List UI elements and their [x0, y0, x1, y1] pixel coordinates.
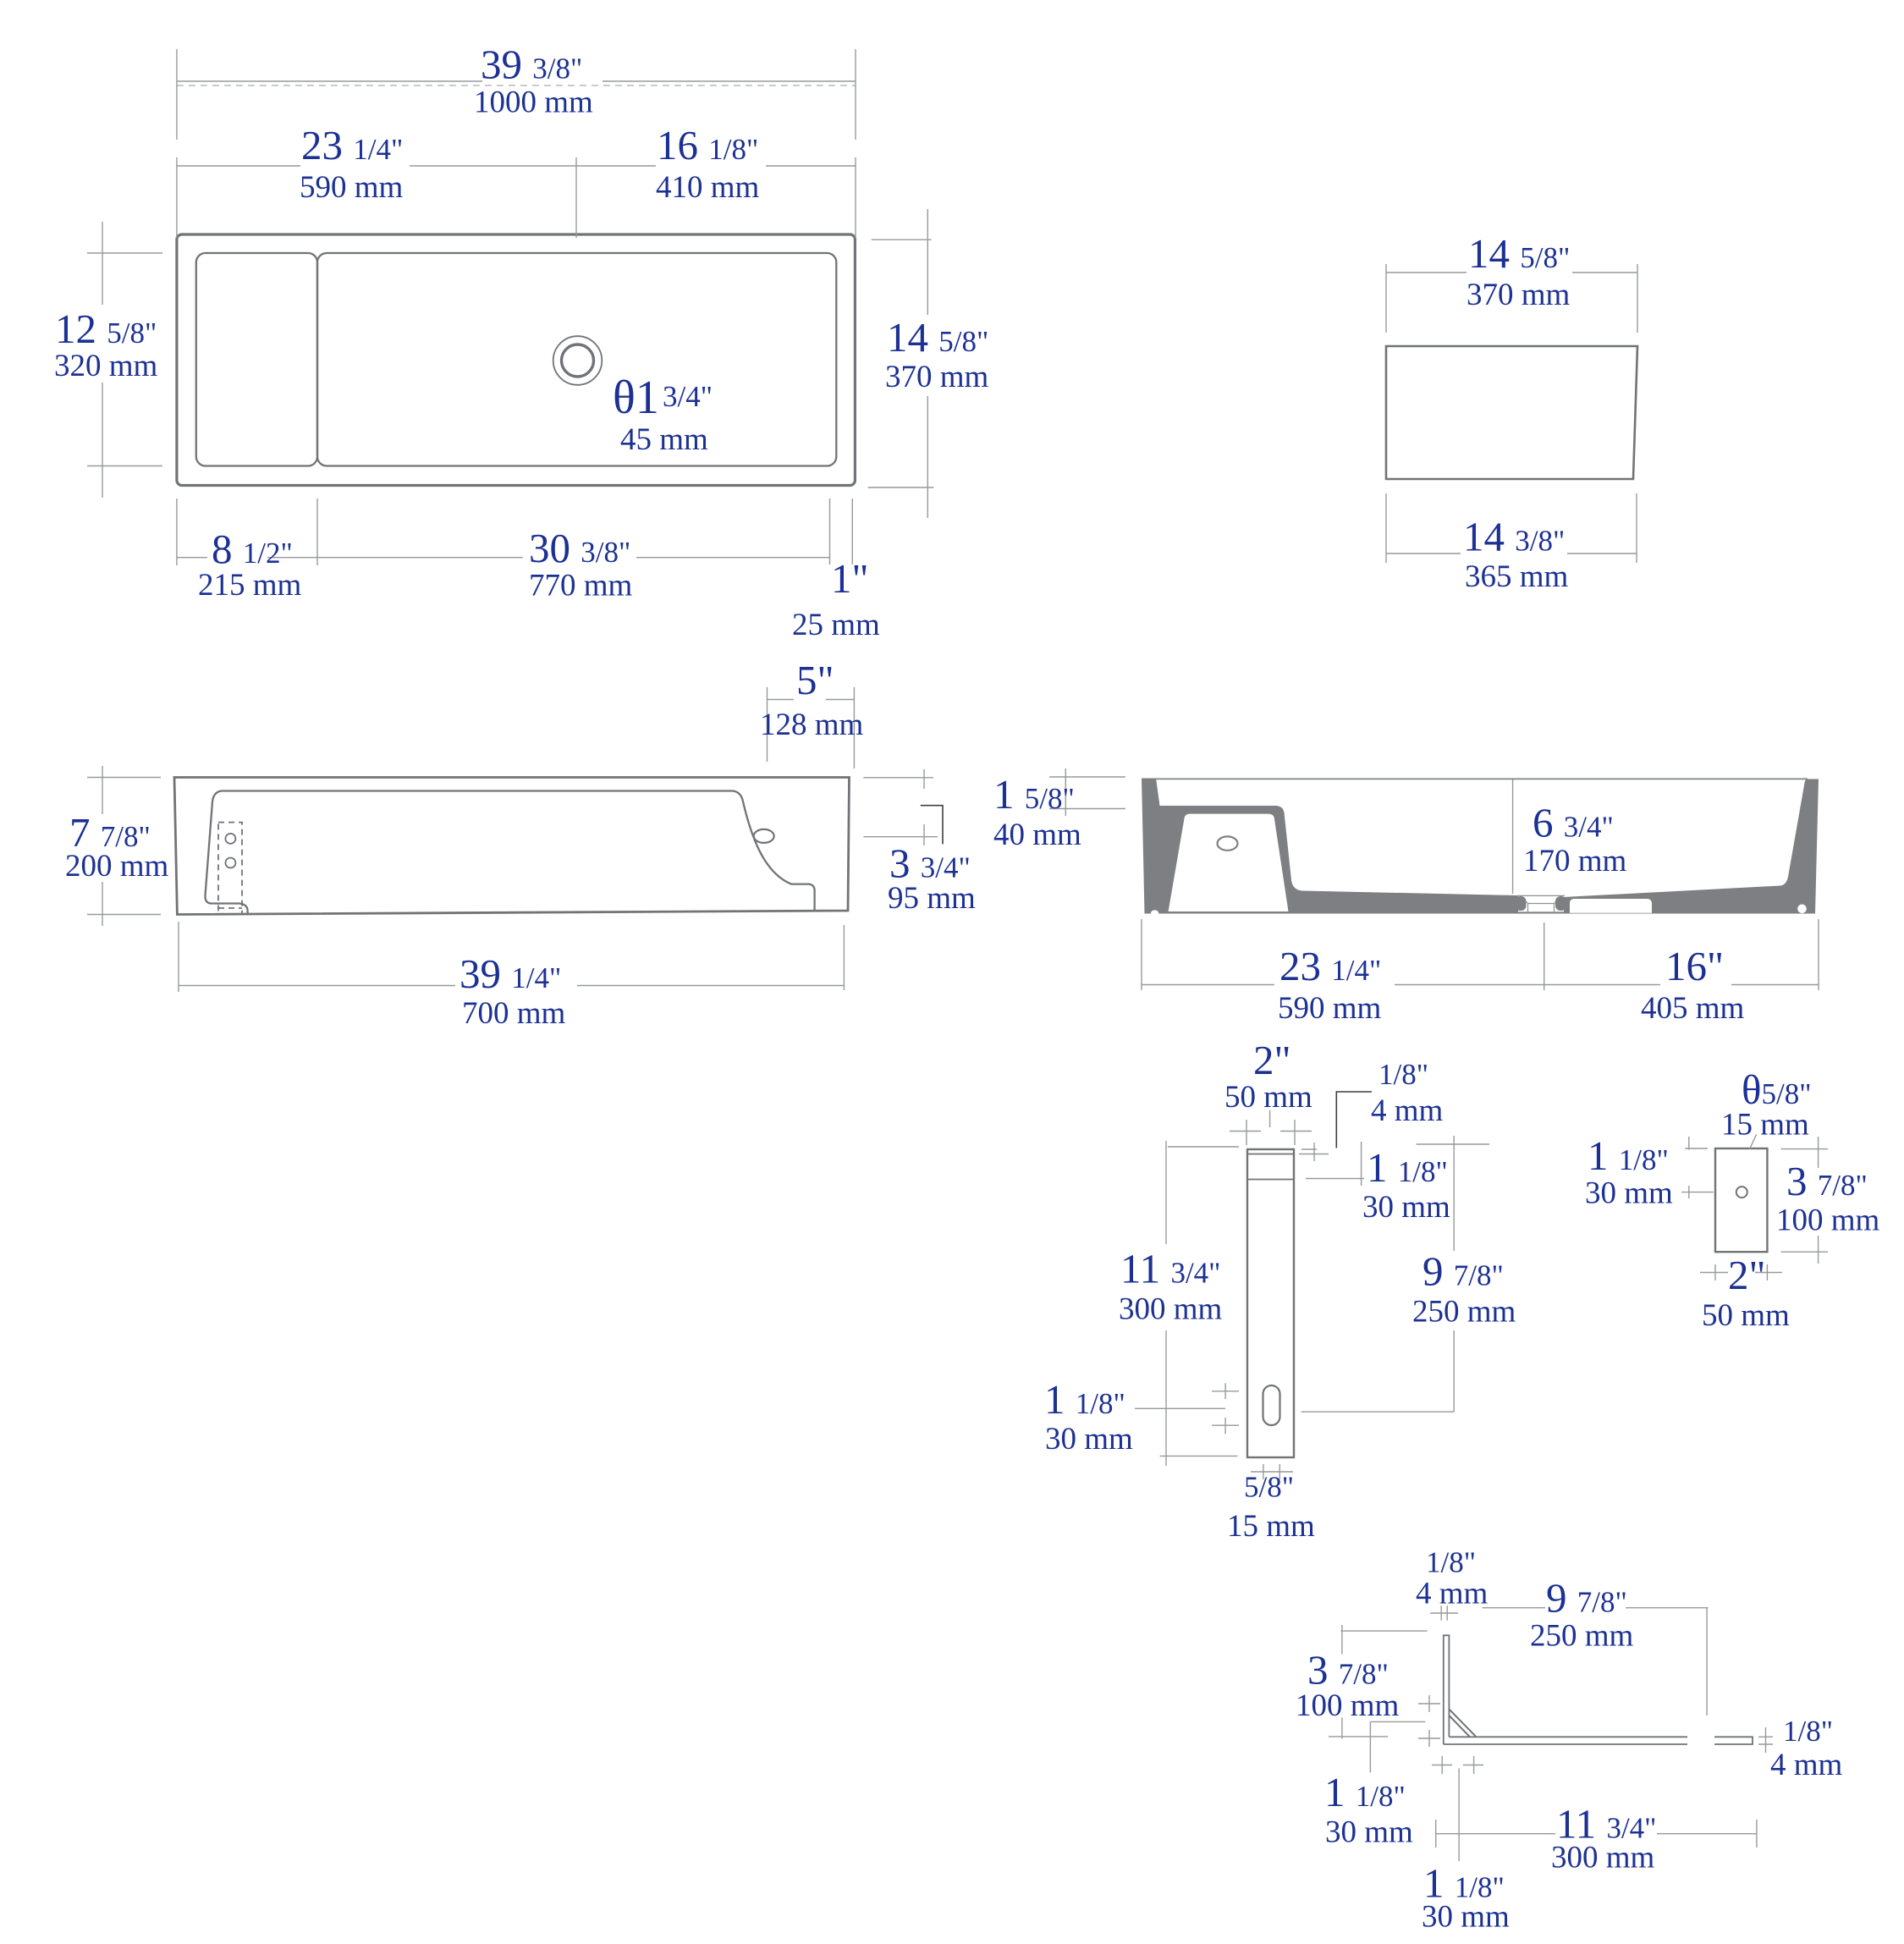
svg-text:θ1: θ1 — [613, 372, 659, 424]
svg-text:300 mm: 300 mm — [1119, 1292, 1223, 1327]
svg-text:590 mm: 590 mm — [300, 170, 404, 205]
svg-text:128 mm: 128 mm — [760, 708, 864, 742]
svg-text:365 mm: 365 mm — [1465, 559, 1569, 594]
svg-text:770 mm: 770 mm — [529, 569, 633, 603]
svg-text:30 mm: 30 mm — [1422, 1900, 1510, 1935]
svg-text:2": 2" — [1728, 1252, 1766, 1298]
svg-text:5": 5" — [796, 657, 834, 703]
svg-text:170 mm: 170 mm — [1523, 844, 1627, 878]
svg-text:30 mm: 30 mm — [1045, 1422, 1133, 1457]
svg-text:410 mm: 410 mm — [656, 170, 760, 205]
svg-text:300 mm: 300 mm — [1551, 1841, 1655, 1875]
svg-text:250 mm: 250 mm — [1412, 1295, 1516, 1330]
svg-text:250 mm: 250 mm — [1530, 1619, 1634, 1654]
svg-text:200 mm: 200 mm — [65, 849, 169, 884]
svg-text:50 mm: 50 mm — [1224, 1080, 1312, 1115]
svg-text:1/8": 1/8" — [1783, 1715, 1833, 1748]
svg-text:95 mm: 95 mm — [888, 881, 976, 916]
svg-text:100 mm: 100 mm — [1296, 1688, 1400, 1723]
svg-text:16": 16" — [1665, 943, 1724, 989]
svg-text:1": 1" — [831, 555, 869, 602]
svg-text:30 mm: 30 mm — [1585, 1176, 1673, 1210]
svg-text:370 mm: 370 mm — [1467, 278, 1571, 312]
svg-text:3/4": 3/4" — [663, 380, 713, 413]
svg-text:1000 mm: 1000 mm — [474, 85, 593, 120]
svg-text:5/8": 5/8" — [1244, 1471, 1294, 1504]
svg-text:215 mm: 215 mm — [198, 568, 302, 603]
svg-text:4 mm: 4 mm — [1371, 1093, 1444, 1128]
svg-text:30 mm: 30 mm — [1325, 1815, 1413, 1850]
svg-text:320 mm: 320 mm — [54, 349, 158, 383]
svg-text:1/8": 1/8" — [1426, 1545, 1476, 1578]
svg-text:50 mm: 50 mm — [1702, 1298, 1790, 1333]
svg-text:4 mm: 4 mm — [1416, 1577, 1489, 1611]
svg-text:700 mm: 700 mm — [462, 996, 566, 1031]
svg-text:4 mm: 4 mm — [1770, 1748, 1843, 1782]
svg-text:590 mm: 590 mm — [1278, 991, 1382, 1026]
svg-text:405 mm: 405 mm — [1641, 991, 1745, 1026]
svg-text:25 mm: 25 mm — [792, 608, 880, 642]
svg-text:1/8": 1/8" — [1378, 1058, 1428, 1091]
svg-text:30 mm: 30 mm — [1362, 1190, 1450, 1225]
svg-text:40 mm: 40 mm — [993, 818, 1081, 852]
svg-text:45 mm: 45 mm — [620, 422, 708, 457]
svg-text:2": 2" — [1253, 1037, 1291, 1083]
svg-text:15 mm: 15 mm — [1227, 1509, 1315, 1544]
svg-text:15 mm: 15 mm — [1721, 1107, 1809, 1142]
svg-text:370 mm: 370 mm — [885, 360, 989, 394]
svg-text:100 mm: 100 mm — [1776, 1203, 1880, 1238]
